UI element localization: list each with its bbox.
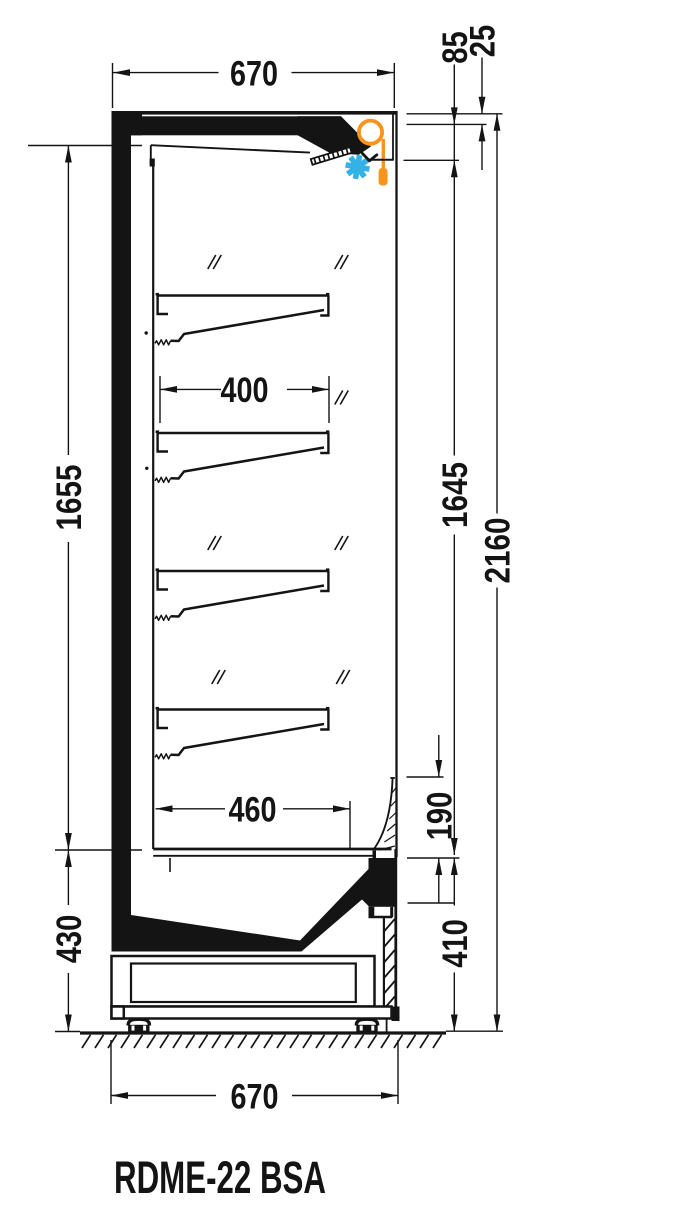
svg-text:190: 190 <box>421 792 460 841</box>
svg-text:1645: 1645 <box>436 462 475 528</box>
svg-text:RDME-22 BSA: RDME-22 BSA <box>114 1152 326 1203</box>
svg-text:670: 670 <box>231 1077 279 1116</box>
svg-text:460: 460 <box>229 791 277 830</box>
svg-text:1655: 1655 <box>50 465 89 531</box>
svg-text:670: 670 <box>230 54 278 93</box>
svg-text:25: 25 <box>464 25 503 58</box>
svg-text:400: 400 <box>221 371 269 410</box>
svg-text:410: 410 <box>436 919 475 968</box>
svg-text:430: 430 <box>50 915 89 964</box>
svg-text:2160: 2160 <box>479 518 518 584</box>
